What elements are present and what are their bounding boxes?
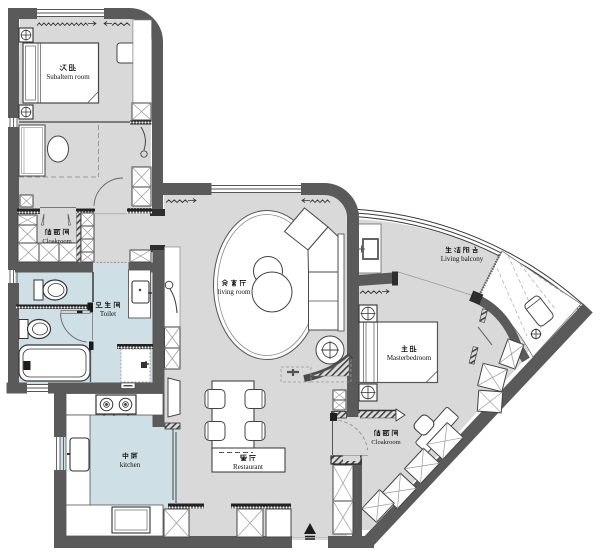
svg-text:Masterbedroom: Masterbedroom <box>387 354 432 362</box>
svg-text:Cloakroom: Cloakroom <box>42 238 71 245</box>
svg-text:Living balcony: Living balcony <box>441 255 484 263</box>
svg-text:Subaltern room: Subaltern room <box>46 73 90 81</box>
svg-text:Toilet: Toilet <box>100 310 116 318</box>
svg-text:Cloakroom: Cloakroom <box>371 439 400 446</box>
svg-text:kitchen: kitchen <box>120 461 141 469</box>
svg-text:Restaurant: Restaurant <box>233 463 263 471</box>
svg-text:living room: living room <box>218 288 251 296</box>
